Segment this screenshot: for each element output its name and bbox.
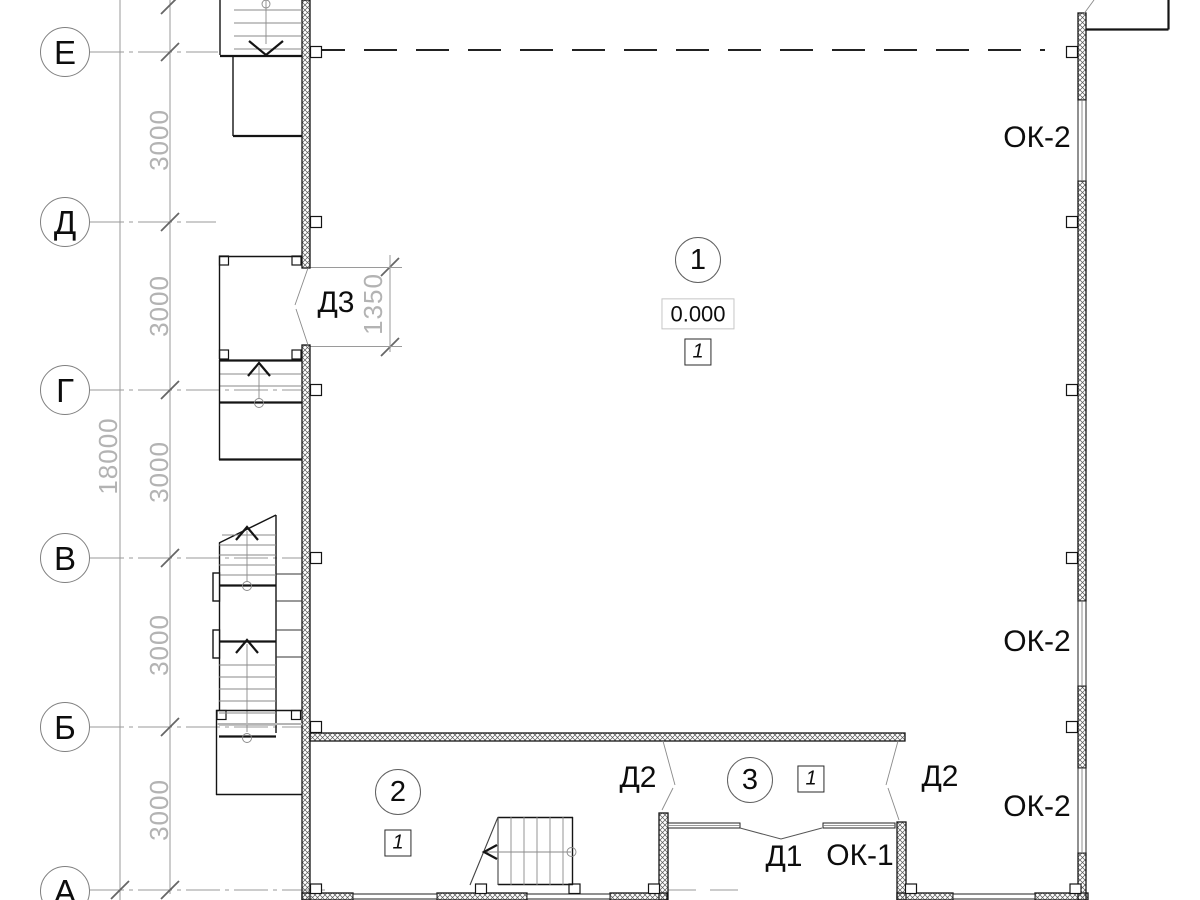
dim-bay-1: 3000	[146, 109, 172, 171]
window-ok2-bottom-glyph	[1078, 768, 1086, 853]
room-2-number: 2	[375, 769, 421, 815]
axis-bubble-e: Е	[40, 27, 90, 77]
door-d2-left-opening	[662, 741, 675, 810]
opening-leaders	[295, 268, 899, 839]
dim-bay-5: 3000	[146, 779, 172, 841]
south-wall-seg1	[302, 893, 353, 900]
east-wall-seg2	[1078, 181, 1086, 601]
entry-stub-right	[897, 822, 906, 900]
dim-total: 18000	[95, 417, 121, 494]
west-wall-upper	[302, 0, 310, 268]
room-axis-b-outline	[216, 711, 302, 796]
room-2-floor-tag: 1	[384, 830, 411, 857]
door-d2-right-opening	[886, 741, 899, 820]
door-d2-right-label: Д2	[921, 762, 958, 792]
stair-axis-g	[219, 360, 302, 460]
dim-bay-4: 3000	[146, 614, 172, 676]
door-d2-left-label: Д2	[619, 763, 656, 793]
east-wall-seg1	[1078, 13, 1086, 100]
entry-stub-left	[659, 813, 668, 900]
room-3-floor-tag: 1	[797, 766, 824, 793]
walls	[302, 0, 1088, 900]
dim-door-opening: 1350	[360, 273, 386, 335]
window-ok2-top-glyph	[1078, 100, 1086, 181]
hall-south-wall	[310, 733, 905, 741]
window-ok2-top-label: ОК-2	[1003, 123, 1071, 153]
window-ok2-middle-glyph	[1078, 601, 1086, 686]
window-ok2-bottom-label: ОК-2	[1003, 792, 1071, 822]
room-1-floor-tag: 1	[684, 339, 711, 366]
dim-bay-3: 3000	[146, 441, 172, 503]
axis-bubble-v: В	[40, 533, 90, 583]
window-ok1-label: ОК-1	[826, 841, 894, 871]
axis-label-b: Б	[54, 711, 76, 744]
door-d1-label: Д1	[765, 842, 802, 872]
door-d1-opening	[740, 828, 822, 839]
room-d3-outline	[219, 257, 302, 361]
porch-outline	[1083, 0, 1169, 30]
stair-top-down	[220, 0, 302, 136]
axis-label-g: Г	[56, 374, 74, 407]
stair-bottom	[470, 817, 576, 885]
axis-label-v: В	[54, 542, 76, 575]
window-ok2-middle-label: ОК-2	[1003, 627, 1071, 657]
elevation-mark: 0.000	[661, 298, 734, 329]
axis-label-d: Д	[54, 206, 76, 239]
axis-label-e: Е	[54, 36, 76, 69]
west-wall-lower	[302, 345, 310, 900]
door-d3-opening	[295, 268, 308, 345]
windows	[353, 100, 1086, 899]
axis-lines	[90, 50, 1045, 890]
axis-bubble-d: Д	[40, 197, 90, 247]
door-d3-label: Д3	[317, 288, 354, 318]
entry-window-band	[668, 823, 895, 828]
axis-bubble-b: Б	[40, 702, 90, 752]
dim-bay-2: 3000	[146, 275, 172, 337]
east-wall-seg3	[1078, 686, 1086, 768]
room-3-number: 3	[727, 757, 773, 803]
stair-main	[213, 515, 302, 743]
floor-plan-canvas: Е Д Г В Б А 3000 3000 3000 3000 3000 180…	[0, 0, 1200, 900]
axis-label-a: А	[54, 875, 76, 900]
axis-bubble-g: Г	[40, 365, 90, 415]
room-1-number: 1	[675, 237, 721, 283]
